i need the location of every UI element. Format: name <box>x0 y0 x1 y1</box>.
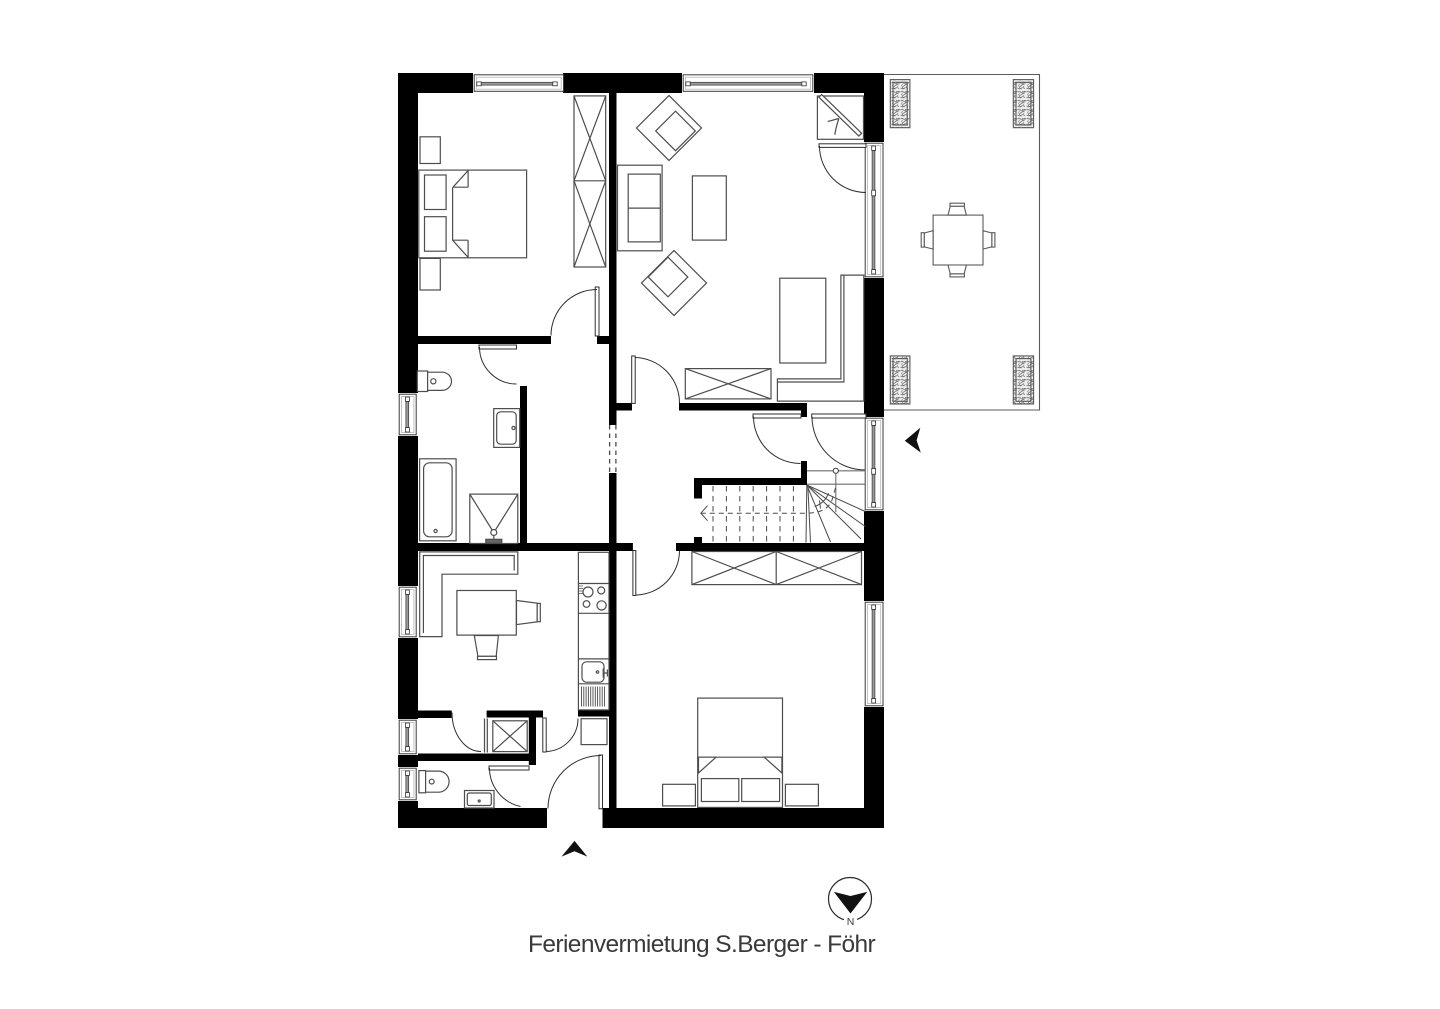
svg-text:Ferienvermietung S.Berger - Fö: Ferienvermietung S.Berger - Föhr <box>528 931 876 958</box>
svg-text:N: N <box>847 916 855 928</box>
